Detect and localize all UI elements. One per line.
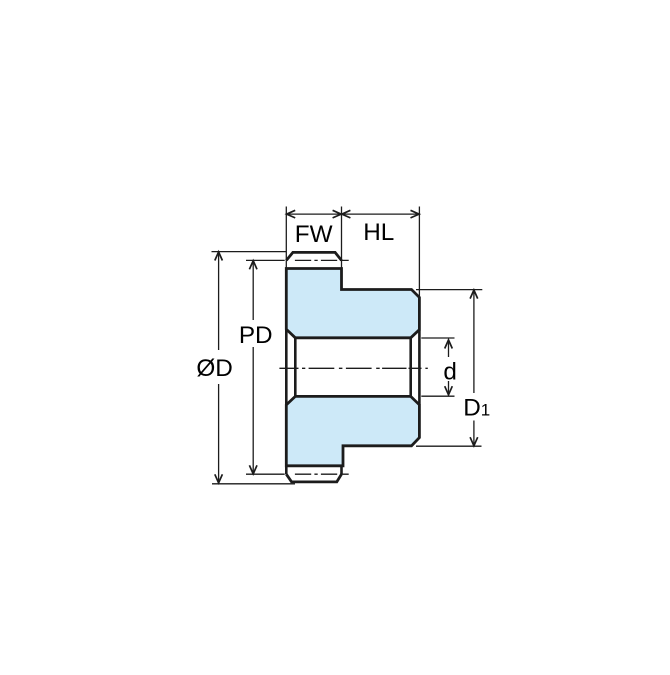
svg-text:d: d [443, 359, 457, 386]
svg-text:ØD: ØD [196, 355, 232, 382]
svg-text:HL: HL [363, 219, 394, 246]
svg-text:FW: FW [295, 221, 333, 248]
svg-text:PD: PD [239, 322, 273, 349]
